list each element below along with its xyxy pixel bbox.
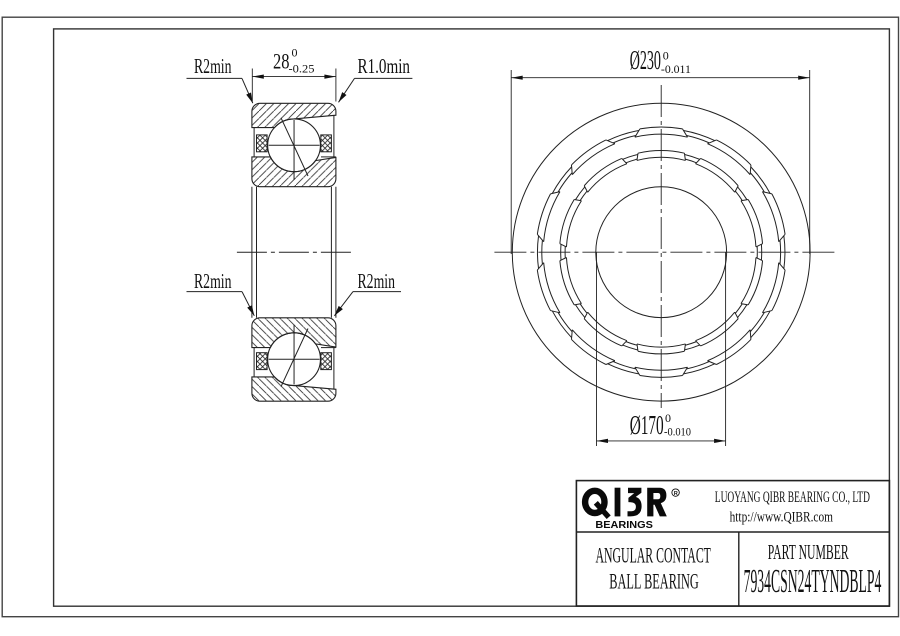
svg-text:-0.010: -0.010: [664, 425, 691, 439]
svg-text:R2min: R2min: [358, 269, 396, 293]
svg-text:R2min: R2min: [194, 54, 232, 78]
svg-text:PART NUMBER: PART NUMBER: [768, 540, 849, 564]
svg-text:R2min: R2min: [194, 269, 232, 293]
svg-text:BEARINGS: BEARINGS: [595, 520, 653, 531]
svg-text:0: 0: [663, 48, 669, 62]
svg-text:28: 28: [273, 49, 290, 74]
svg-text:-0.25: -0.25: [289, 63, 315, 75]
svg-text:BALL BEARING: BALL BEARING: [609, 568, 699, 593]
svg-text:0: 0: [292, 48, 298, 60]
svg-text:Ø170: Ø170: [630, 410, 664, 440]
svg-text:ANGULAR CONTACT: ANGULAR CONTACT: [596, 543, 712, 568]
svg-text:Ø230: Ø230: [630, 45, 661, 75]
svg-text:-0.011: -0.011: [661, 62, 691, 76]
svg-text:7934CSN24TYNDBLP4: 7934CSN24TYNDBLP4: [744, 563, 882, 600]
svg-text:0: 0: [665, 411, 671, 425]
svg-text:R1.0min: R1.0min: [358, 54, 411, 78]
svg-text:R: R: [674, 491, 678, 497]
svg-text:http://www.QIBR.com: http://www.QIBR.com: [730, 510, 834, 526]
svg-text:LUOYANG QIBR BEARING CO., LTD: LUOYANG QIBR BEARING CO., LTD: [715, 489, 870, 506]
